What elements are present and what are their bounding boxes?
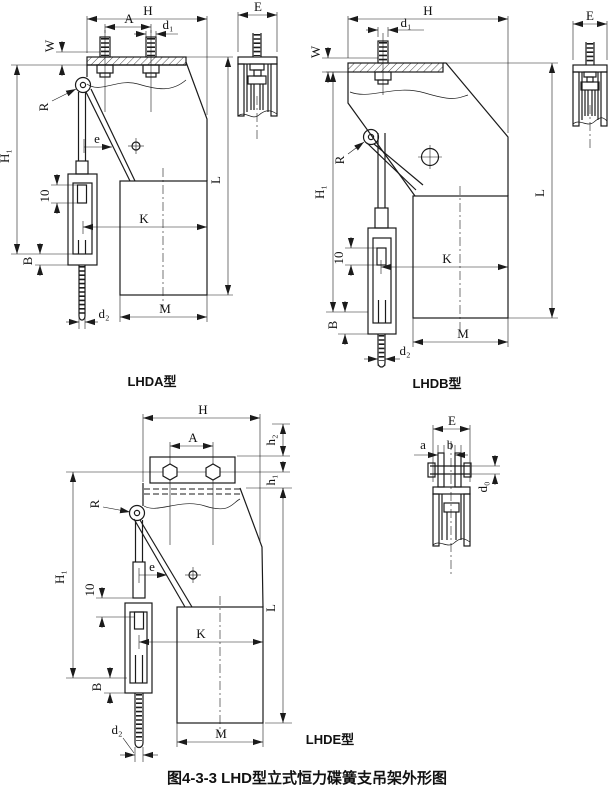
lhde-dim-label-e: e [149,559,155,574]
lhdb-dimensions: H d₁ W H₁ R 10 B K [308,3,558,366]
lhdb-dim-label-H: H [423,3,432,18]
lhda-dim-label-d1: d₁ [162,17,173,32]
lhdb-dim-label-d2: d₂ [399,343,410,358]
technical-drawing: H A d₁ W H₁ R e L 10 [0,0,610,794]
lhda-side-view: E [238,0,277,140]
lhdb-dim-label-M: M [457,326,469,341]
lhde-dim-label-10: 10 [82,584,97,597]
lhde-side-view: E a b d₀ [414,413,500,576]
lhdb-dim-label-10: 10 [331,252,346,265]
lhda-turnbuckle [68,92,97,320]
lhde-hex-bolt-right [206,464,220,480]
lhda-dim-label-10: 10 [37,190,52,203]
lhde-dim-label-K: K [196,626,206,641]
lhde-dim-label-H1: H₁ [52,570,67,584]
lhda-spring-housing [120,168,207,309]
lhde-type-label: LHDE型 [306,732,354,747]
lhde-turnbuckle [125,520,152,748]
lhdb-dim-label-B: B [325,320,340,329]
lhda-dim-label-H: H [143,3,152,18]
lhdb-dim-label-H1: H₁ [312,185,327,199]
lhde-front-view: H A h₂ h₁ L H₁ R e 10 [52,402,354,762]
lhda-dimensions: H A d₁ W H₁ R e L 10 [0,3,233,329]
lhda-dim-label-H1: H₁ [0,149,12,163]
lhde-dim-label-E: E [448,413,456,428]
lhda-body-plate [76,62,208,181]
lhdb-dim-label-L: L [532,189,547,197]
lhdb-turnbuckle [368,133,396,367]
lhda-dim-label-d2: d₂ [98,306,109,321]
lhde-dim-label-d0: d₀ [475,481,490,492]
lhdb-side-view: E [573,8,607,148]
lhde-dim-label-a: a [420,437,426,452]
lhdb-type-label: LHDB型 [412,376,461,391]
lhde-dim-label-b: b [447,437,454,452]
lhda-dim-label-M: M [159,301,171,316]
lhda-dim-label-B: B [20,256,35,265]
lhde-dim-label-B: B [89,682,104,691]
lhdb-dim-label-E: E [586,8,594,23]
lhda-dim-label-R: R [36,102,51,111]
figure-page: H A d₁ W H₁ R e L 10 [0,0,610,794]
lhdb-spring-housing [413,186,508,331]
lhde-dim-label-A: A [188,430,198,445]
lhde-hex-bolt-left [163,464,177,480]
lhde-dim-label-M: M [215,726,227,741]
lhdb-mounting-plate [348,63,443,72]
lhda-dim-label-E: E [254,0,262,14]
lhde-dim-label-L: L [263,604,278,612]
lhda-dim-label-A: A [124,11,134,26]
lhde-dim-label-h2: h₂ [263,434,278,445]
lhde-dim-label-h1: h₁ [263,474,278,485]
lhda-dim-label-K: K [139,211,149,226]
lhda-anchor-studs [97,30,159,112]
lhde-body-plate [130,483,264,607]
lhda-dim-label-L: L [208,176,223,184]
lhdb-front-view: H d₁ W H₁ R 10 B K [308,3,558,391]
lhdb-dim-label-W: W [308,45,323,58]
lhde-top-plate [66,442,290,545]
lhde-dim-label-R: R [87,499,102,508]
lhda-mounting-plate [87,57,186,65]
lhdb-dim-label-d1: d₁ [400,15,411,30]
lhde-dim-label-H: H [198,402,207,417]
lhda-type-label: LHDA型 [127,374,176,389]
lhda-dim-label-W: W [42,39,57,52]
lhdb-body-plate [348,63,508,196]
lhda-front-view: H A d₁ W H₁ R e L 10 [0,3,233,389]
figure-caption: 图4-3-3 LHD型立式恒力碟簧支吊架外形图 [167,769,447,787]
lhdb-dim-label-R: R [332,155,347,164]
lhde-dimensions: H A h₂ h₁ L H₁ R e 10 [52,402,292,762]
lhde-spring-housing [177,596,263,735]
lhdb-dim-label-K: K [442,251,452,266]
lhda-dim-label-e: e [94,131,100,146]
lhde-clevis [428,453,471,487]
lhde-dim-label-d2: d₂ [111,722,122,737]
